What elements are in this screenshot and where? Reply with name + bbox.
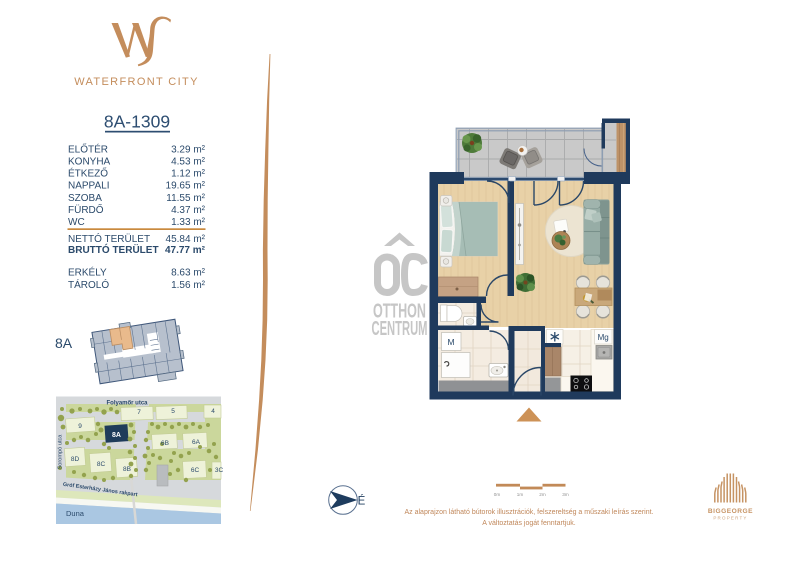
svg-text:11.55 m²: 11.55 m²	[166, 193, 205, 204]
svg-text:BIGGEORGE: BIGGEORGE	[708, 508, 753, 515]
svg-text:NAPPALI: NAPPALI	[68, 181, 110, 192]
svg-text:47.77 m²: 47.77 m²	[165, 245, 206, 256]
svg-text:1.33 m²: 1.33 m²	[171, 217, 206, 228]
svg-text:8A-1309: 8A-1309	[104, 112, 170, 132]
svg-text:A változtatás jogát fenntartju: A változtatás jogát fenntartjuk.	[482, 520, 575, 527]
svg-text:4.53 m²: 4.53 m²	[171, 157, 206, 168]
svg-text:8C: 8C	[97, 461, 106, 468]
svg-text:Folyamőr utca: Folyamőr utca	[106, 401, 148, 407]
svg-text:6B: 6B	[161, 440, 169, 447]
svg-text:8B: 8B	[123, 466, 131, 473]
svg-text:8.63 m²: 8.63 m²	[171, 268, 206, 279]
svg-text:M: M	[447, 337, 454, 347]
svg-text:FÜRDŐ: FÜRDŐ	[68, 202, 104, 216]
svg-text:4: 4	[211, 408, 215, 415]
svg-text:3C: 3C	[215, 467, 224, 474]
svg-text:3m: 3m	[562, 492, 569, 497]
svg-text:8D: 8D	[71, 456, 80, 463]
svg-text:Sorompó utca: Sorompó utca	[58, 434, 64, 470]
svg-text:0m: 0m	[494, 492, 501, 497]
svg-text:ÉTKEZŐ: ÉTKEZŐ	[68, 166, 108, 180]
svg-text:6C: 6C	[191, 467, 200, 474]
svg-text:2m: 2m	[539, 492, 546, 497]
svg-text:TÁROLÓ: TÁROLÓ	[68, 278, 109, 291]
svg-text:3.29 m²: 3.29 m²	[171, 144, 206, 155]
svg-text:ERKÉLY: ERKÉLY	[68, 266, 107, 279]
svg-text:Mg: Mg	[598, 333, 609, 342]
svg-text:CENTRUM: CENTRUM	[372, 317, 428, 340]
svg-text:1.12 m²: 1.12 m²	[171, 169, 206, 180]
svg-text:WATERFRONT CITY: WATERFRONT CITY	[74, 76, 199, 88]
svg-text:Az alaprajzon látható bútorok: Az alaprajzon látható bútorok illusztrác…	[405, 509, 654, 516]
svg-text:NETTÓ TERÜLET: NETTÓ TERÜLET	[68, 232, 150, 245]
svg-text:45.84 m²: 45.84 m²	[166, 234, 206, 245]
svg-text:SZOBA: SZOBA	[68, 193, 102, 204]
svg-text:BRUTTÓ TERÜLET: BRUTTÓ TERÜLET	[68, 243, 159, 256]
svg-text:É: É	[358, 495, 366, 508]
svg-text:PROPERTY: PROPERTY	[713, 516, 747, 521]
svg-text:8A: 8A	[55, 335, 73, 351]
svg-text:19.65 m²: 19.65 m²	[166, 181, 206, 192]
svg-text:5: 5	[171, 408, 175, 415]
svg-text:8A: 8A	[112, 432, 121, 439]
svg-text:4.37 m²: 4.37 m²	[171, 205, 206, 216]
svg-text:7: 7	[137, 409, 141, 416]
svg-text:ELŐTÉR: ELŐTÉR	[68, 141, 108, 155]
svg-text:1m: 1m	[517, 492, 524, 497]
svg-text:Duna: Duna	[66, 509, 85, 518]
svg-text:WC: WC	[68, 217, 85, 228]
svg-text:6A: 6A	[192, 439, 201, 446]
svg-text:9: 9	[78, 423, 82, 430]
svg-text:1.56 m²: 1.56 m²	[171, 280, 206, 291]
svg-text:KONYHA: KONYHA	[68, 157, 111, 168]
